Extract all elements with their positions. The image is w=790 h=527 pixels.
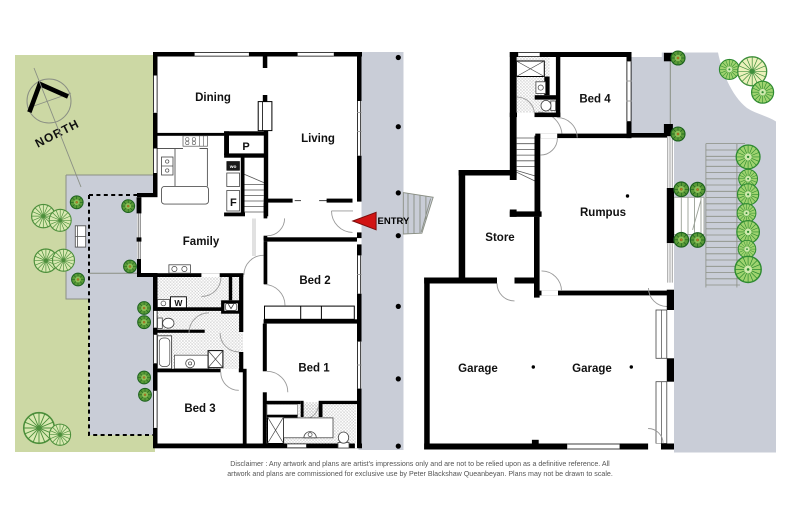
svg-text:Bed 3: Bed 3 [184,403,215,415]
svg-text:Family: Family [183,236,220,248]
svg-text:Garage: Garage [458,363,498,375]
svg-text:Disclaimer : Any artwork and p: Disclaimer : Any artwork and plans are a… [230,460,610,468]
svg-text:Store: Store [485,232,514,244]
svg-text:Rumpus: Rumpus [580,207,626,219]
svg-text:P: P [242,141,249,153]
svg-text:F: F [230,197,237,209]
svg-text:wo: wo [229,165,237,170]
svg-text:Dining: Dining [195,92,231,104]
svg-text:Bed 1: Bed 1 [298,363,330,375]
svg-text:artwork and plans are commissi: artwork and plans are commissioned for e… [227,470,613,478]
svg-text:ENTRY: ENTRY [378,216,411,227]
svg-text:Living: Living [301,133,335,145]
svg-text:W: W [174,298,183,308]
svg-text:Bed 4: Bed 4 [579,94,611,106]
svg-text:Garage: Garage [572,363,612,375]
svg-text:Bed 2: Bed 2 [299,275,330,287]
